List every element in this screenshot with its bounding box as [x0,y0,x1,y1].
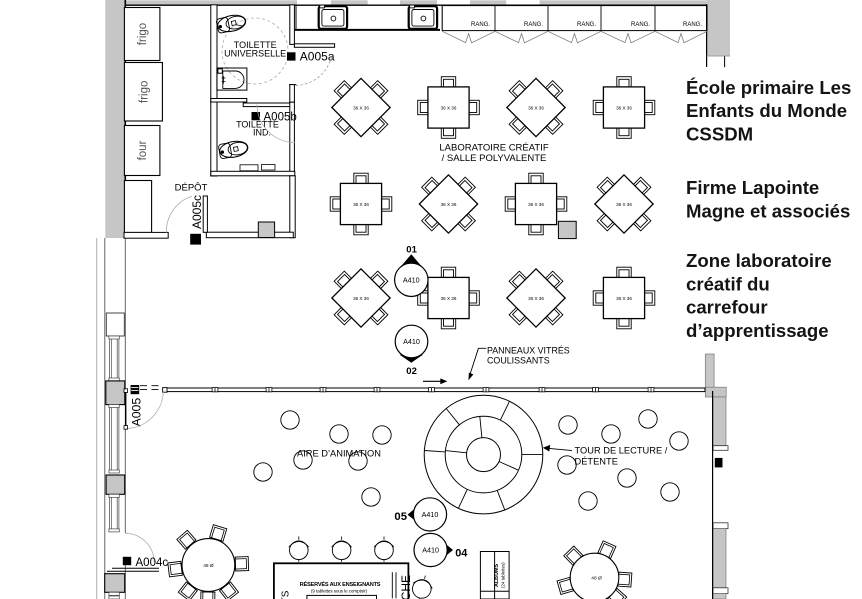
svg-text:d’apprentissage: d’apprentissage [686,320,829,341]
svg-text:Magne et associés: Magne et associés [686,200,850,221]
svg-text:36 X 36: 36 X 36 [616,296,632,301]
svg-text:48 Ø: 48 Ø [203,563,214,569]
svg-text:RANG.: RANG. [577,22,596,28]
svg-text:36 X 36: 36 X 36 [616,202,632,207]
svg-text:RANG.: RANG. [471,22,490,28]
svg-text:TOUR DE LECTURE /: TOUR DE LECTURE / [575,445,668,455]
svg-text:A410: A410 [403,275,420,284]
svg-text:carrefour: carrefour [686,297,768,318]
svg-text:TABOURETS: TABOURETS [281,590,292,599]
svg-text:48 Ø: 48 Ø [591,576,602,582]
svg-text:frigo: frigo [138,81,150,103]
svg-text:four: four [137,140,149,160]
svg-text:RANG.: RANG. [683,22,702,28]
svg-text:IND.: IND. [253,128,271,138]
svg-text:A410: A410 [422,510,439,519]
svg-text:A410: A410 [422,546,439,555]
svg-text:ALBUMS: ALBUMS [494,564,500,587]
svg-text:créatif du: créatif du [686,273,770,294]
svg-text:PANNEAUX VITRÉS: PANNEAUX VITRÉS [487,345,570,355]
svg-text:A410: A410 [403,337,420,346]
svg-text:A004c: A004c [136,557,169,569]
svg-text:DÉPÔT: DÉPÔT [175,183,208,194]
svg-text:/ SALLE POLYVALENTE: / SALLE POLYVALENTE [442,153,547,164]
svg-text:frigo: frigo [137,23,149,45]
svg-text:01: 01 [406,245,417,256]
svg-text:36 X 36: 36 X 36 [353,202,369,207]
svg-text:Firme Lapointe: Firme Lapointe [686,177,819,198]
svg-text:RÉSERVÉS AUX ENSEIGNANTS: RÉSERVÉS AUX ENSEIGNANTS [300,580,381,588]
svg-text:36 X 36: 36 X 36 [528,296,544,301]
svg-text:MARCHE: MARCHE [399,575,413,599]
svg-text:A005a: A005a [300,49,335,63]
svg-text:Enfants du Monde: Enfants du Monde [686,100,847,121]
svg-text:36 X 36: 36 X 36 [353,296,369,301]
svg-text:RANG.: RANG. [524,22,543,28]
svg-text:36 X 36: 36 X 36 [528,202,544,207]
svg-text:DÉTENTE: DÉTENTE [575,457,618,467]
svg-text:École primaire Les: École primaire Les [686,77,851,98]
svg-text:36 X 36: 36 X 36 [441,202,457,207]
svg-text:(9 tablettes sous le comptoir): (9 tablettes sous le comptoir) [311,588,368,593]
svg-text:A005: A005 [130,398,144,427]
svg-text:05: 05 [394,511,407,523]
svg-text:A005c: A005c [190,195,204,229]
svg-text:36 X 36: 36 X 36 [441,296,457,301]
svg-text:CSSDM: CSSDM [686,123,753,144]
svg-text:04: 04 [455,547,468,559]
svg-text:02: 02 [406,366,417,377]
svg-text:UNIVERSELLE: UNIVERSELLE [224,48,286,58]
svg-text:(24 tablettes): (24 tablettes) [500,562,505,588]
svg-text:36 X 36: 36 X 36 [353,105,369,110]
svg-text:36 X 36: 36 X 36 [528,105,544,110]
svg-text:Zone laboratoire: Zone laboratoire [686,250,832,271]
svg-text:COULISSANTS: COULISSANTS [487,355,550,365]
svg-text:36 X 36: 36 X 36 [616,105,632,110]
svg-text:36 X 36: 36 X 36 [441,105,457,110]
svg-text:RANG.: RANG. [631,22,650,28]
